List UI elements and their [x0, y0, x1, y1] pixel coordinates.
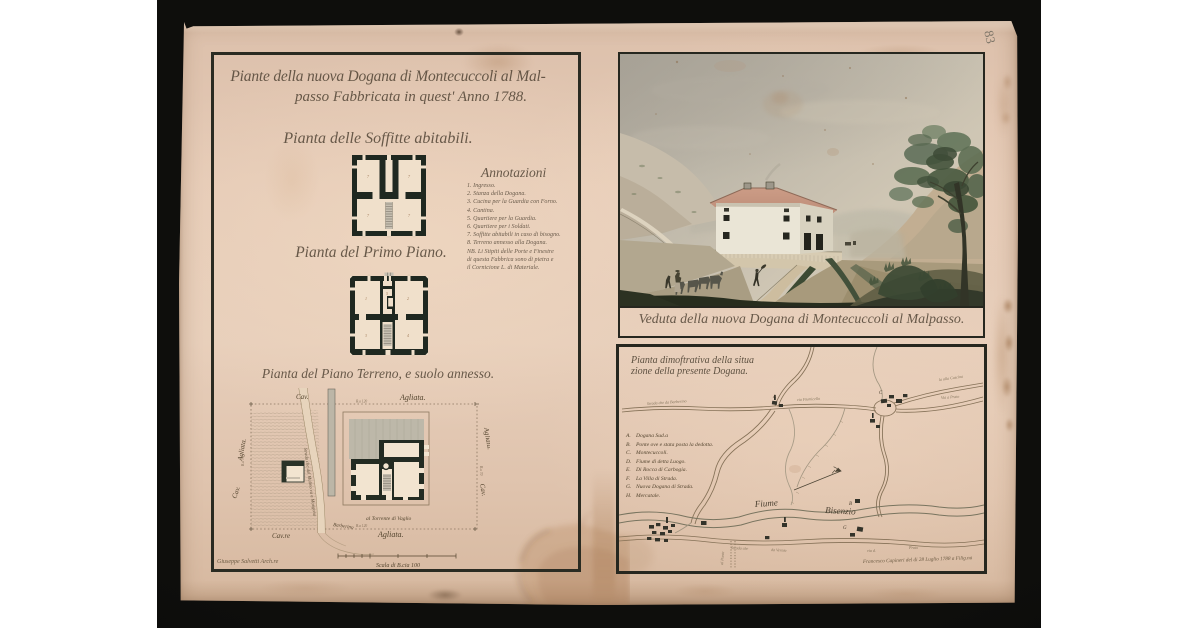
svg-text:Dogana Sud.a: Dogana Sud.a [635, 433, 668, 439]
svg-text:F.: F. [625, 476, 630, 482]
svg-text:Cav.: Cav. [296, 393, 309, 401]
svg-text:Nuova Dogana di Strada.: Nuova Dogana di Strada. [635, 484, 694, 490]
svg-text:Agliata.: Agliata. [399, 393, 426, 402]
svg-text:Mercatale.: Mercatale. [635, 493, 660, 499]
svg-text:G.: G. [626, 484, 631, 490]
svg-text:Montecuccoli.: Montecuccoli. [635, 450, 668, 456]
svg-text:Agliata.: Agliata. [482, 426, 490, 451]
svg-text:via d.: via d. [867, 548, 876, 553]
svg-text:Ponte ove e stata posta la ded: Ponte ove e stata posta la dedotta. [635, 442, 713, 448]
svg-text:Via a Prato: Via a Prato [941, 394, 960, 400]
svg-text:La Villa di Strada.: La Villa di Strada. [635, 476, 677, 482]
svg-text:Cav.re: Cav.re [272, 532, 290, 540]
svg-text:Strada che da Barberino: Strada che da Barberino [647, 398, 687, 406]
svg-text:al Torrente di Vaglio: al Torrente di Vaglio [366, 516, 412, 522]
svg-text:A: A [772, 395, 777, 400]
svg-text:B.a 120: B.a 120 [356, 400, 367, 404]
svg-text:Barberino: Barberino [333, 523, 355, 531]
svg-text:D.: D. [625, 459, 631, 465]
svg-text:B.: B. [626, 442, 631, 448]
svg-text:Scala di B.cia 100: Scala di B.cia 100 [376, 563, 420, 569]
svg-text:via Fiumicello: via Fiumicello [797, 396, 820, 402]
svg-text:Bisenzio: Bisenzio [825, 505, 856, 517]
svg-text:Cav.: Cav. [478, 483, 488, 497]
svg-text:Pianta dimoftrativa della situ: Pianta dimoftrativa della situa [630, 355, 754, 366]
svg-text:B.a 120: B.a 120 [356, 524, 367, 528]
svg-text:Fiume di detta Luogo.: Fiume di detta Luogo. [635, 459, 686, 465]
svg-text:A.: A. [625, 433, 631, 439]
svg-text:Fiume: Fiume [753, 497, 778, 509]
svg-text:Agliata.: Agliata. [236, 438, 248, 463]
svg-text:5: 5 [386, 291, 388, 296]
svg-text:da Vernio: da Vernio [771, 547, 787, 553]
svg-text:Prato: Prato [908, 545, 918, 550]
svg-text:la alla Cascina: la alla Cascina [938, 374, 963, 382]
svg-text:E.: E. [625, 467, 631, 473]
svg-text:Cav.: Cav. [230, 485, 242, 500]
svg-text:Agliata.: Agliata. [377, 530, 404, 539]
svg-text:C.: C. [626, 450, 631, 456]
svg-text:3: 3 [365, 333, 367, 338]
svg-text:B.a 70: B.a 70 [479, 466, 483, 476]
svg-text:Francesco Capineri del di 28 L: Francesco Capineri del di 28 Luglio 1788… [862, 555, 973, 565]
svg-text:4: 4 [407, 333, 409, 338]
svg-text:H.: H. [625, 493, 631, 499]
svg-text:1: 1 [365, 296, 367, 301]
svg-text:Strada che: Strada che [731, 545, 749, 551]
svg-text:zione della presente Dogana.: zione della presente Dogana. [630, 366, 748, 377]
svg-text:2: 2 [407, 296, 409, 301]
svg-text:G: G [843, 526, 847, 531]
svg-text:Di Rocca di Carbogia.: Di Rocca di Carbogia. [635, 467, 687, 473]
svg-text:al Ponte: al Ponte [719, 551, 725, 565]
